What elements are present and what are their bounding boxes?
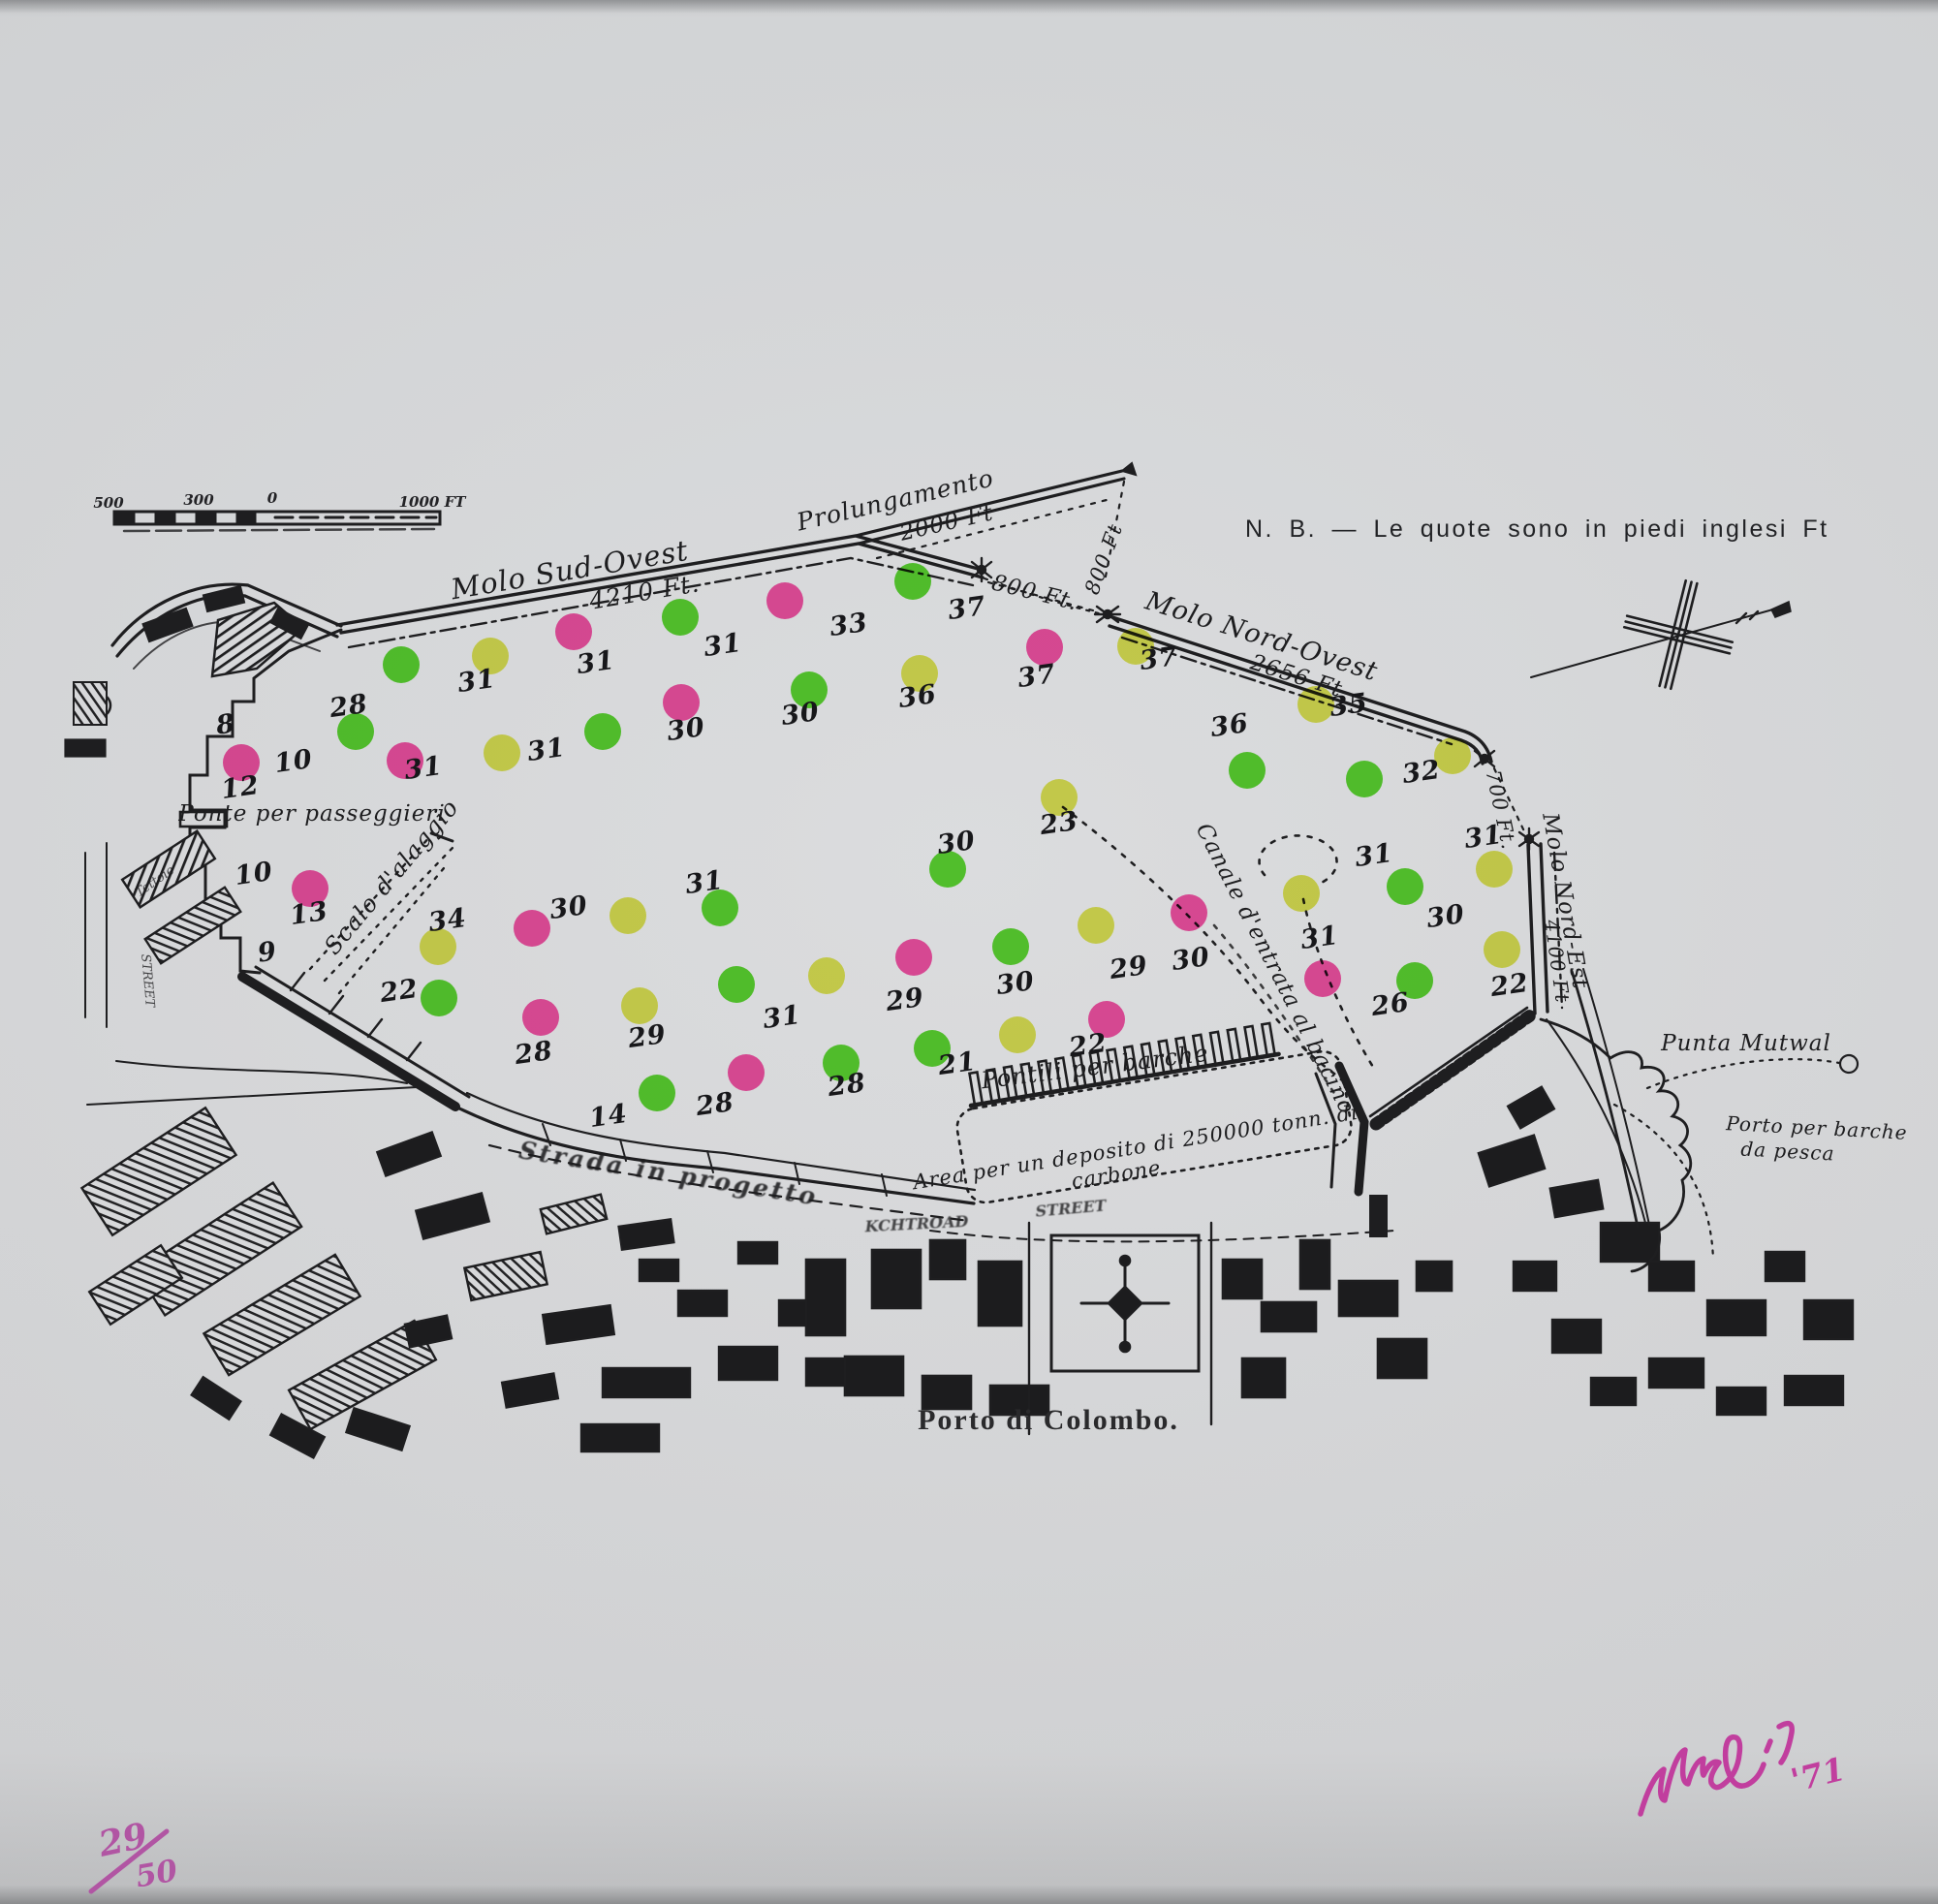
- depth-value: 31: [761, 1000, 803, 1035]
- depth-dot-green: [1346, 761, 1383, 797]
- depth-value: 31: [525, 733, 568, 767]
- compass-rose: [1531, 569, 1791, 701]
- depth-dot-green: [639, 1075, 675, 1111]
- depth-value: 10: [272, 744, 315, 779]
- depth-dot-yellow: [621, 987, 658, 1024]
- depth-value: 37: [946, 591, 988, 626]
- scale-bar-label: 300: [183, 491, 213, 509]
- depth-dot-pink: [1171, 894, 1207, 931]
- depth-dot-pink: [514, 910, 550, 947]
- depth-value: 22: [1488, 968, 1531, 1003]
- depth-dot-pink: [895, 939, 932, 976]
- edition-number: 29 50: [85, 1818, 178, 1899]
- depth-value: 30: [994, 966, 1037, 1001]
- depth-dot-green: [1387, 868, 1423, 905]
- depth-value: 30: [1170, 942, 1212, 977]
- depth-dot-pink: [728, 1054, 765, 1091]
- depth-value: 14: [587, 1099, 630, 1134]
- depth-value: 12: [219, 770, 262, 805]
- depth-value: 29: [626, 1019, 669, 1054]
- depth-dot-green: [1229, 752, 1266, 789]
- depth-value: 30: [935, 826, 978, 860]
- depth-value: 29: [1108, 951, 1150, 985]
- depth-dot-yellow: [610, 897, 646, 934]
- depth-dot-pink: [1304, 960, 1341, 997]
- depth-value: 37: [1016, 659, 1058, 694]
- depth-value: 31: [402, 751, 445, 786]
- depth-value: 23: [1038, 806, 1080, 841]
- map-lineart: [0, 0, 1938, 1904]
- depth-dot-yellow: [808, 957, 845, 994]
- map-label: da pesca: [1740, 1137, 1835, 1165]
- depth-dot-green: [992, 928, 1029, 965]
- depth-value: 21: [936, 1046, 979, 1081]
- depth-value: 28: [513, 1036, 555, 1071]
- depth-value: 8: [214, 708, 237, 740]
- depth-value: 30: [665, 712, 707, 747]
- depth-value: 32: [1400, 755, 1443, 790]
- depth-value: 28: [694, 1087, 736, 1122]
- depth-value: 36: [1208, 708, 1251, 743]
- depth-dot-yellow: [1283, 875, 1320, 912]
- depth-value: 13: [288, 896, 330, 931]
- depth-value: 30: [1424, 899, 1467, 934]
- depth-value: 31: [1353, 838, 1395, 873]
- depth-value: 31: [1298, 921, 1341, 955]
- depth-value: 33: [828, 608, 870, 642]
- depth-value: 28: [826, 1068, 868, 1103]
- scale-bar-label: 500: [93, 494, 123, 512]
- depth-value: 31: [455, 664, 498, 699]
- depth-dot-yellow: [999, 1016, 1036, 1053]
- city-blocks-southwest: [81, 1061, 860, 1457]
- map-label: Punta Mutwal: [1661, 1031, 1831, 1056]
- depth-value: 30: [547, 890, 590, 925]
- depth-value: 10: [233, 857, 275, 891]
- depth-dot-yellow: [1476, 851, 1513, 888]
- west-breakwater: [66, 584, 341, 756]
- note-nota-bene: N. B. — Le quote sono in piedi inglesi F…: [1245, 515, 1829, 544]
- depth-dot-green: [584, 713, 621, 750]
- depth-dot-green: [383, 646, 420, 683]
- depth-value: 28: [328, 689, 370, 724]
- depth-value: 31: [683, 865, 726, 900]
- map-label: Ponte per passeggieri: [178, 801, 445, 827]
- depth-dot-green: [718, 966, 755, 1003]
- depth-dot-green: [662, 599, 699, 636]
- artwork-photo: 8101228313131333737373036303131363532233…: [0, 0, 1938, 1904]
- depth-dot-pink: [766, 582, 803, 619]
- depth-value: 37: [1138, 641, 1180, 676]
- depth-dot-pink: [555, 613, 592, 650]
- depth-value: 31: [702, 628, 744, 663]
- depth-dot-green: [421, 980, 457, 1016]
- scale-bar: [114, 512, 440, 531]
- left-quay: [85, 630, 341, 1027]
- depth-value: 29: [884, 983, 926, 1017]
- depth-dot-pink: [522, 999, 559, 1036]
- depth-dot-yellow: [1078, 907, 1114, 944]
- depth-value: 34: [426, 903, 469, 938]
- depth-value: 30: [779, 697, 822, 732]
- depth-dot-yellow: [1484, 931, 1520, 968]
- map-title: Porto di Colombo.: [918, 1404, 1179, 1437]
- scale-bar-label: 1000 FT: [399, 493, 466, 511]
- depth-value: 26: [1369, 987, 1412, 1022]
- depth-value: 36: [896, 679, 939, 714]
- depth-value: 9: [256, 936, 279, 968]
- city-blocks-center: [806, 1223, 1452, 1434]
- depth-dot-green: [894, 563, 931, 600]
- scale-bar-label: 0: [267, 489, 277, 507]
- edition-denominator: 50: [133, 1854, 180, 1895]
- depth-value: 22: [378, 974, 421, 1009]
- depth-value: 31: [575, 645, 617, 680]
- plaza: [1051, 1235, 1199, 1371]
- molo-nord-est: [1370, 768, 1562, 1124]
- depth-dot-yellow: [484, 734, 520, 771]
